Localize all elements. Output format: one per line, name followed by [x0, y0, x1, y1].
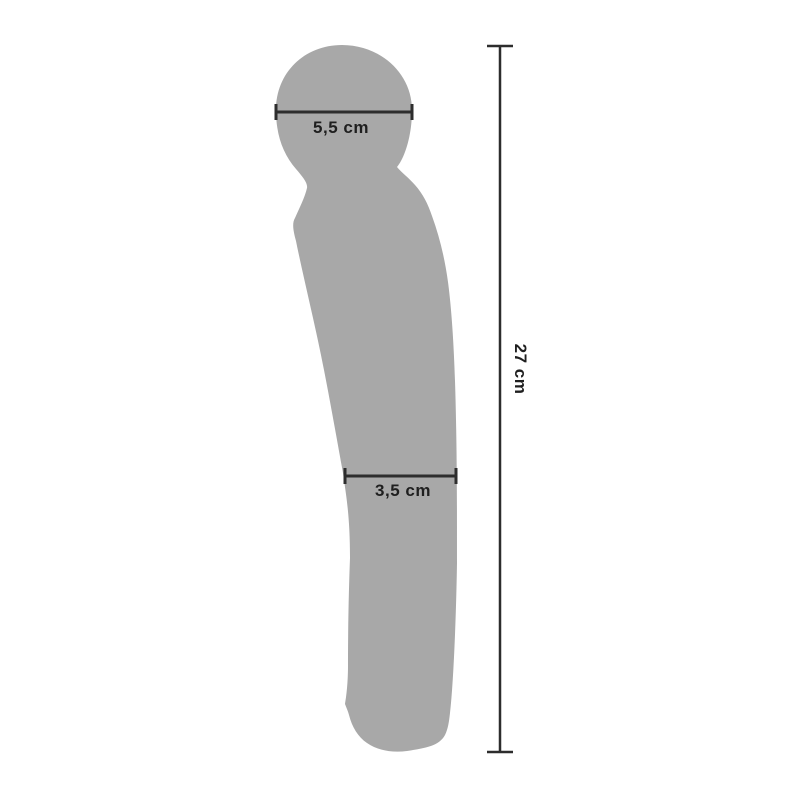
dimension-diagram — [0, 0, 800, 800]
product-silhouette — [276, 45, 457, 752]
shaft-width-label: 3,5 cm — [375, 481, 431, 501]
head-width-label: 5,5 cm — [313, 118, 369, 138]
diagram-canvas: 5,5 cm 3,5 cm 27 cm — [0, 0, 800, 800]
length-dimension-line — [487, 46, 513, 752]
total-length-label: 27 cm — [510, 344, 530, 395]
